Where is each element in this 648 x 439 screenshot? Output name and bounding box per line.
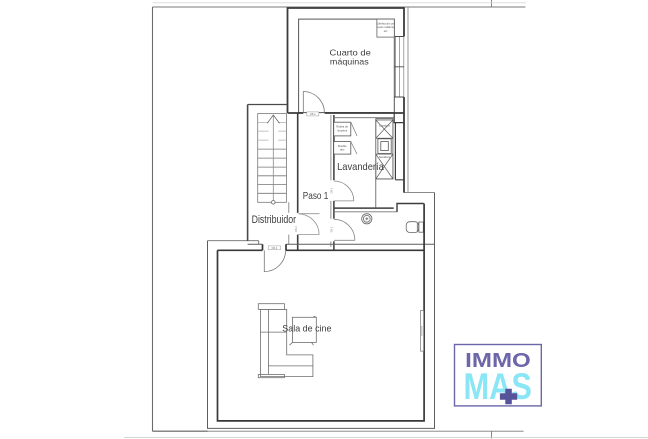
svg-text:Mueble: Mueble xyxy=(338,144,347,148)
svg-text:D8-2: D8-2 xyxy=(329,187,333,193)
svg-text:D8-2: D8-2 xyxy=(294,226,298,232)
svg-text:suelo radiante: suelo radiante xyxy=(377,25,394,29)
svg-text:Lavandería: Lavandería xyxy=(337,162,384,173)
svg-text:D8-2: D8-2 xyxy=(310,112,316,116)
svg-text:Distribuidor: Distribuidor xyxy=(252,214,297,226)
svg-text:Sala de cine: Sala de cine xyxy=(282,323,331,333)
svg-text:MAS: MAS xyxy=(464,366,532,407)
svg-text:alto: alto xyxy=(340,148,345,152)
svg-text:Lavadora: Lavadora xyxy=(379,123,390,127)
svg-text:corredera: corredera xyxy=(421,325,424,336)
svg-text:D8-2: D8-2 xyxy=(329,226,333,232)
svg-text:máquinas: máquinas xyxy=(330,57,369,67)
svg-text:Rodea de: Rodea de xyxy=(336,125,348,129)
svg-text:Calefacción por: Calefacción por xyxy=(376,22,395,26)
svg-text:limpieza: limpieza xyxy=(337,128,347,132)
svg-text:Paso 1: Paso 1 xyxy=(303,191,329,202)
svg-text:D8-2: D8-2 xyxy=(272,246,278,250)
svg-text:Secadora: Secadora xyxy=(379,155,391,159)
